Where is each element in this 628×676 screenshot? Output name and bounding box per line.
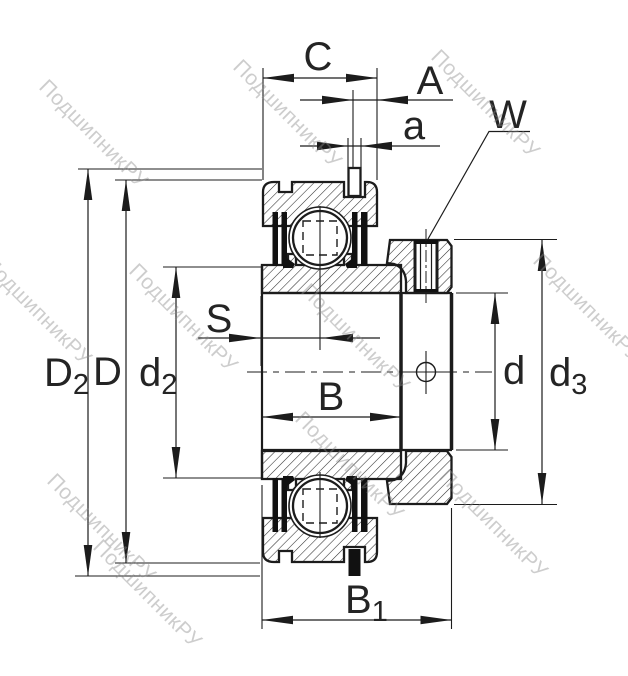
bearing-technical-drawing: C A a W S B	[0, 0, 628, 676]
arrowhead	[262, 413, 293, 422]
arrowhead	[491, 293, 500, 324]
dim-label-B: B	[318, 375, 345, 419]
watermark: ПодшипникРУ	[434, 465, 552, 583]
arrowhead	[262, 616, 293, 625]
dim-label-d: d	[503, 349, 525, 393]
arrowhead	[346, 74, 377, 83]
dim-label-a: a	[403, 104, 426, 148]
arrowhead	[538, 473, 547, 504]
dim-label-D: D	[93, 350, 122, 394]
watermark: ПодшипникРУ	[34, 75, 152, 193]
drawing-canvas: C A a W S B	[0, 0, 628, 676]
locating-pin-upper	[349, 168, 361, 196]
dimension-W: W	[428, 93, 530, 239]
watermark: ПодшипникРУ	[88, 535, 206, 653]
arrowhead	[370, 413, 401, 422]
dim-label-d2: d2	[139, 351, 177, 401]
arrowhead	[229, 334, 260, 343]
watermark: ПодшипникРУ	[42, 469, 160, 587]
watermark: ПодшипникРУ	[528, 249, 628, 367]
locating-pin-lower	[349, 549, 361, 576]
arrowhead	[172, 447, 181, 478]
dim-label-B1: B1	[345, 578, 388, 628]
arrowhead	[491, 419, 500, 450]
dim-label-C: C	[304, 35, 333, 79]
arrowhead	[377, 96, 408, 105]
dim-label-d3: d3	[549, 351, 587, 401]
arrowhead	[322, 96, 353, 105]
arrowhead	[421, 616, 452, 625]
dimension-B: B	[262, 375, 401, 421]
arrowhead	[84, 169, 93, 200]
dimension-D: D	[93, 180, 262, 563]
